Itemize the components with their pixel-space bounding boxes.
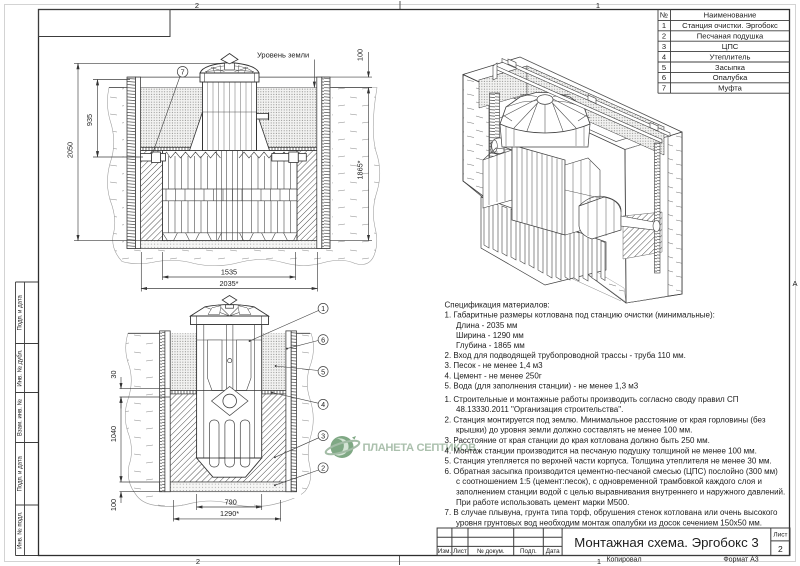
svg-text:6: 6 bbox=[662, 73, 666, 82]
svg-text:4: 4 bbox=[321, 400, 325, 409]
svg-text:1: 1 bbox=[596, 1, 600, 10]
svg-text:1: 1 bbox=[597, 557, 601, 566]
svg-text:4. Монтаж станции производится: 4. Монтаж станции производится на песчан… bbox=[445, 446, 757, 455]
svg-text:1. Строительные и монтажные ра: 1. Строительные и монтажные работы произ… bbox=[445, 395, 739, 404]
svg-text:Инв. № дубл.: Инв. № дубл. bbox=[17, 349, 24, 386]
svg-text:Засыпка: Засыпка bbox=[715, 63, 746, 72]
svg-text:3. Песок - не менее 1,4 м3: 3. Песок - не менее 1,4 м3 bbox=[445, 361, 544, 370]
svg-text:уровня грунтовых вод необходим: уровня грунтовых вод необходим монтаж оп… bbox=[456, 518, 762, 527]
svg-text:1: 1 bbox=[321, 304, 325, 313]
svg-text:3. Расстояние от края станции: 3. Расстояние от края станции до края ко… bbox=[445, 436, 710, 445]
svg-text:4. Цемент - не менее 250г: 4. Цемент - не менее 250г bbox=[445, 371, 542, 380]
svg-text:6: 6 bbox=[321, 335, 325, 344]
svg-text:3: 3 bbox=[321, 431, 325, 440]
svg-text:Формат А3: Формат А3 bbox=[723, 557, 758, 564]
svg-text:Дата: Дата bbox=[546, 548, 560, 555]
svg-text:Подп. и дата: Подп. и дата bbox=[18, 455, 24, 491]
svg-text:Станция очистки. Эргобокс: Станция очистки. Эргобокс bbox=[682, 21, 778, 30]
svg-text:2: 2 bbox=[195, 1, 199, 10]
svg-text:7. В случае плывуна, грунта ти: 7. В случае плывуна, грунта типа торф, о… bbox=[445, 508, 779, 517]
svg-text:Изм.: Изм. bbox=[438, 548, 452, 555]
svg-text:Копировал: Копировал bbox=[606, 557, 641, 564]
svg-text:30: 30 bbox=[109, 370, 118, 378]
svg-text:Песчаная подушка: Песчаная подушка bbox=[697, 32, 764, 41]
svg-text:100: 100 bbox=[356, 49, 365, 61]
svg-text:При работе использовать цемент: При работе использовать цемент марки М50… bbox=[456, 498, 629, 507]
svg-text:№: № bbox=[660, 11, 668, 20]
svg-text:Подп.: Подп. bbox=[520, 548, 537, 555]
svg-text:Лист: Лист bbox=[773, 532, 787, 539]
svg-text:А: А bbox=[792, 279, 797, 288]
svg-text:2. Станция монтируется под зем: 2. Станция монтируется под землю. Минима… bbox=[445, 415, 766, 424]
svg-text:1040: 1040 bbox=[109, 426, 118, 442]
svg-text:1. Габаритные размеры котлован: 1. Габаритные размеры котлована под стан… bbox=[445, 311, 715, 320]
svg-text:Утеплитель: Утеплитель bbox=[710, 52, 751, 61]
svg-text:7: 7 bbox=[181, 68, 185, 77]
svg-text:Наименование: Наименование bbox=[704, 11, 757, 20]
svg-text:заполнением станции водой с це: заполнением станции водой с целью выравн… bbox=[456, 488, 785, 497]
svg-text:5: 5 bbox=[662, 63, 666, 72]
svg-text:2: 2 bbox=[778, 544, 783, 554]
svg-text:1: 1 bbox=[662, 21, 666, 30]
svg-text:Опалубка: Опалубка bbox=[713, 73, 748, 82]
svg-text:1290*: 1290* bbox=[220, 509, 239, 518]
svg-text:935: 935 bbox=[85, 114, 94, 126]
svg-text:6. Обратная засыпка производит: 6. Обратная засыпка производится цементн… bbox=[445, 467, 779, 476]
svg-text:2050: 2050 bbox=[66, 142, 75, 158]
svg-text:100: 100 bbox=[109, 499, 118, 511]
svg-text:ЦПС: ЦПС bbox=[722, 42, 739, 51]
svg-text:1535: 1535 bbox=[221, 267, 237, 276]
svg-text:7: 7 bbox=[662, 84, 666, 93]
svg-text:Глубина - 1865 мм: Глубина - 1865 мм bbox=[456, 341, 525, 350]
svg-text:48.13330.2011 "Организация стр: 48.13330.2011 "Организация строительства… bbox=[456, 405, 623, 414]
svg-text:Ширина - 1290 мм: Ширина - 1290 мм bbox=[456, 331, 524, 340]
svg-text:4: 4 bbox=[662, 52, 666, 61]
svg-text:2035*: 2035* bbox=[219, 279, 238, 288]
svg-text:790: 790 bbox=[225, 497, 237, 506]
svg-text:Уровень земли: Уровень земли bbox=[257, 51, 309, 60]
svg-text:крышки) до уровня земли должно: крышки) до уровня земли должно составлят… bbox=[456, 426, 692, 435]
svg-text:Лист: Лист bbox=[453, 548, 467, 555]
svg-text:Взам. инв. №: Взам. инв. № bbox=[17, 399, 24, 436]
svg-text:Монтажная схема. Эргобокс 3: Монтажная схема. Эргобокс 3 bbox=[574, 535, 758, 550]
svg-text:Инв. № подл.: Инв. № подл. bbox=[17, 511, 24, 549]
svg-text:5. Станция утепляется по верхн: 5. Станция утепляется по верхней части к… bbox=[445, 457, 772, 466]
svg-text:Муфта: Муфта bbox=[718, 84, 743, 93]
svg-text:1865*: 1865* bbox=[356, 160, 365, 179]
svg-text:Спецификация материалов:: Спецификация материалов: bbox=[445, 301, 550, 310]
svg-text:2: 2 bbox=[321, 464, 325, 473]
svg-text:5. Вода (для заполнения станци: 5. Вода (для заполнения станции) - не ме… bbox=[445, 381, 639, 390]
svg-text:2: 2 bbox=[196, 557, 200, 566]
svg-text:с соотношением 1:5 (цемент:пес: с соотношением 1:5 (цемент:песок), с одн… bbox=[456, 477, 762, 486]
svg-text:3: 3 bbox=[662, 42, 666, 51]
svg-text:Подп. и дата: Подп. и дата bbox=[18, 294, 24, 330]
svg-text:2: 2 bbox=[662, 32, 666, 41]
svg-text:2. Вход для подводящей трубопр: 2. Вход для подводящей трубопроводной тр… bbox=[445, 351, 686, 360]
svg-text:5: 5 bbox=[321, 367, 325, 376]
svg-text:Длина - 2035 мм: Длина - 2035 мм bbox=[456, 321, 518, 330]
svg-text:№ докум.: № докум. bbox=[477, 548, 505, 555]
